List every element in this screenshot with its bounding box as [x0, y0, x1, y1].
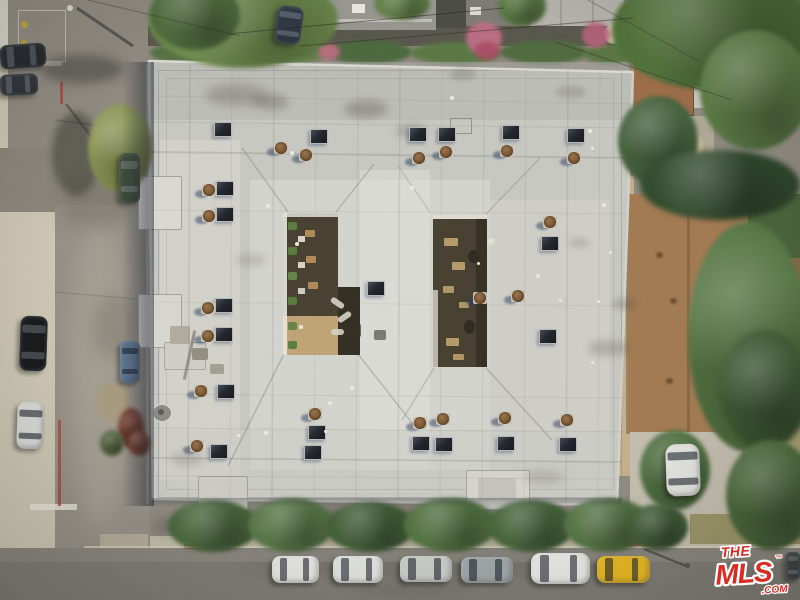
- garden-hedge-right: [748, 194, 800, 258]
- aerial-photo-scene: THE MLS ™ .COM: [0, 0, 800, 600]
- stair-bumpout-1: [138, 176, 182, 230]
- vehicle-green-left-street: [119, 153, 140, 203]
- tree-top-big-dark: [150, 0, 240, 50]
- roof-pipe-vent-17: [328, 401, 332, 405]
- red-curb-left: [58, 420, 61, 506]
- roof-pipe-vent-20: [237, 434, 240, 437]
- vent-shadow-20: [536, 222, 549, 230]
- roof-vent-18: [474, 292, 486, 304]
- white-pipes-2: [486, 238, 495, 245]
- street-worn-patch: [70, 210, 130, 530]
- parapet-line-south: [152, 458, 622, 462]
- main-building-roof: [0, 0, 800, 600]
- seam-h-3: [150, 210, 632, 214]
- dry-grass-right: [742, 428, 800, 516]
- fire-hydrant: [21, 21, 28, 28]
- watermark-tm-text: ™: [775, 555, 782, 562]
- cl-planter-3: [288, 272, 297, 280]
- satellite-dish-center: [158, 409, 164, 415]
- suv-navy-top: [273, 4, 304, 45]
- roof-lines: [0, 0, 800, 600]
- roof-stain-4: [396, 124, 426, 138]
- roof-skylight-9: [215, 298, 233, 313]
- roof-stain-9: [568, 238, 590, 248]
- bougainvillea-3: [474, 42, 500, 60]
- seam-h-1: [150, 96, 634, 104]
- car-windshield: [303, 558, 309, 581]
- roof-vent-base-6: [567, 152, 581, 164]
- street-vertical-upper: [8, 0, 150, 212]
- seam-v-4: [314, 66, 316, 500]
- pole-shadow-bottomright: [644, 549, 686, 566]
- seam-v-5: [356, 67, 358, 500]
- cr-furniture-3: [443, 286, 454, 293]
- dead-bush: [96, 382, 130, 422]
- left-sidewalk: [0, 60, 60, 548]
- hip-seam-1: [242, 148, 288, 212]
- roof-pipe-vent-6: [450, 96, 454, 100]
- dark-equipment-2: [374, 330, 386, 340]
- pole-shadow-2: [66, 104, 100, 148]
- tree-top-left-small: [374, 0, 430, 20]
- mls-watermark: THE MLS ™ .COM: [710, 538, 800, 600]
- roof-skylight-19: [435, 437, 453, 452]
- roof-pipe-vent-16: [591, 147, 594, 150]
- roof-skylight-18: [412, 436, 430, 451]
- vehicles-layer: [0, 0, 800, 600]
- roof-vent-base-13: [436, 413, 450, 425]
- roof-vent-17: [309, 408, 321, 420]
- roof-skylight-2: [310, 129, 328, 144]
- bottom-street-oil: [350, 583, 470, 595]
- roof-pipe-vent-2: [295, 242, 299, 246]
- seam-h-4: [150, 302, 630, 306]
- cr-plant-1: [468, 250, 479, 263]
- roof-pipe-vent-14: [602, 203, 606, 207]
- bottom-tree-3: [326, 502, 414, 552]
- roof-hatch-outline: [450, 118, 472, 134]
- bougainvillea-2: [466, 22, 502, 54]
- cl-bench-3: [331, 329, 344, 335]
- roof-vent-base-16: [190, 440, 204, 452]
- roof-skylight-5: [502, 125, 520, 140]
- bumpout-bottom-left: [198, 476, 248, 510]
- roof-vent-base-11: [194, 385, 208, 397]
- power-wire-2: [300, 18, 634, 46]
- roof-parapet-inset: [158, 70, 622, 498]
- cl-planter-2: [288, 247, 297, 255]
- red-curb-bottom-right: [588, 541, 660, 547]
- roof-skylight-20: [497, 436, 515, 451]
- roof-vent-base-19: [511, 290, 525, 302]
- house-pad-top: [248, 0, 312, 32]
- roof-light-right: [490, 200, 610, 460]
- tree-top-mid: [498, 0, 546, 26]
- roof-edge-top: [149, 61, 633, 72]
- seam-v-1: [188, 64, 190, 500]
- roof-pipe-vent-1: [266, 204, 270, 208]
- seam-v-7: [440, 68, 442, 502]
- roof-vent-base-12: [413, 417, 427, 429]
- truck-dark-topleft-2: [0, 73, 39, 96]
- seam-h-2: [150, 122, 634, 128]
- white-pipes-1: [472, 290, 484, 298]
- roof-pipe-vent-21: [324, 430, 327, 433]
- house-railing: [306, 19, 432, 22]
- roof-pipe-vent-5: [410, 186, 414, 190]
- wire-shadow-2: [55, 292, 148, 300]
- car-windshield: [277, 29, 299, 37]
- car-silver-bottom: [400, 556, 452, 582]
- bottom-tree-4: [404, 498, 496, 552]
- bottom-street-tire: [240, 560, 620, 576]
- roof-stain-7: [588, 340, 630, 356]
- white-structure-right: [694, 66, 722, 108]
- street-bottom: [0, 548, 800, 600]
- pole-shadow-1: [77, 8, 133, 46]
- roof-pipe-vent-13: [609, 251, 612, 254]
- rooftop-unit-2: [352, 4, 365, 13]
- roof-pipe-vent-8: [489, 240, 492, 243]
- roof-pipe-vent-12: [591, 361, 594, 364]
- roof-vent-10: [202, 330, 214, 342]
- roof-col-light-mid: [360, 170, 430, 470]
- vent-shadow-14: [491, 418, 504, 426]
- truck-dark-topleft-1: [0, 42, 47, 69]
- curb-line-bottom: [84, 546, 800, 548]
- bumpout-bottom-mid: [466, 470, 530, 510]
- car-windshield: [21, 352, 44, 359]
- crosswalk-line: [8, 62, 62, 66]
- roof-stain-6: [556, 86, 586, 98]
- cl-planter-6: [288, 341, 297, 349]
- vent-shadow-7: [195, 190, 208, 198]
- utility-pole-top-left: [67, 5, 73, 11]
- vent-shadow-19: [504, 296, 517, 304]
- power-wire-1: [228, 8, 504, 34]
- roof-vent-base-18: [473, 292, 487, 304]
- roof-vent-base-8: [202, 210, 216, 222]
- roof-vent-base-7: [202, 184, 216, 196]
- cl-floor-tan: [283, 316, 338, 355]
- building-west-wall-shadow: [122, 62, 154, 506]
- curb-line-left-street: [146, 64, 149, 504]
- roof-vent-base-14: [498, 412, 512, 424]
- equipment-2: [192, 348, 208, 360]
- cr-furniture-6: [453, 354, 464, 360]
- power-wire-4: [588, 0, 700, 62]
- hip-seam-4: [486, 158, 540, 214]
- roof-edge-south: [153, 499, 617, 505]
- equipment-shed: [164, 342, 206, 370]
- vent-shadow-10: [194, 336, 207, 344]
- vent-shadow-12: [406, 423, 419, 431]
- roof-pipe-vent-11: [597, 300, 600, 303]
- car-windshield: [30, 45, 37, 65]
- car-windshield: [366, 558, 372, 581]
- driveway-right: [630, 432, 744, 516]
- pergola-roof: [630, 58, 694, 116]
- parking-bay-marking: [18, 10, 66, 62]
- brown-roof-dot-1: [656, 252, 663, 258]
- rooftop-unit-1: [312, 5, 325, 14]
- roof-vent-16: [191, 440, 203, 452]
- roof-vent-1: [300, 149, 312, 161]
- roof-stain-2: [253, 94, 289, 110]
- cl-wall-top: [283, 213, 338, 217]
- roof-vent-base-17: [308, 408, 322, 420]
- tree-top-big: [148, 0, 338, 68]
- red-curb-left-top: [60, 82, 63, 104]
- roof-stain-5: [450, 68, 476, 80]
- umbrella-small-top: [604, 24, 632, 44]
- vent-shadow-6: [560, 158, 573, 166]
- roof-vent-12: [414, 417, 426, 429]
- car-windshield: [341, 558, 349, 581]
- hip-seam-6: [358, 354, 416, 428]
- car-windshield: [408, 558, 416, 580]
- vent-shadow-1: [292, 155, 305, 163]
- house-black-roof: [266, 0, 304, 24]
- car-windshield: [605, 558, 613, 581]
- cl-bench-2: [337, 310, 353, 324]
- roof-vent-base-1: [299, 149, 313, 161]
- umbrella-center-pole: [684, 146, 688, 150]
- overlay-shadows-layer: [0, 0, 800, 600]
- hedge-2: [238, 44, 328, 64]
- stop-line: [30, 504, 77, 510]
- car-black-left-street: [19, 316, 48, 372]
- cl-wall-left: [283, 213, 287, 355]
- car-windshield: [540, 555, 549, 582]
- cr-furniture-1: [444, 238, 458, 246]
- car-windshield: [22, 324, 45, 333]
- vent-shadow-18: [466, 298, 479, 306]
- roof-skylight-8: [216, 207, 234, 222]
- roof-vent-base-20: [543, 216, 557, 228]
- house-modern-seam-1: [560, 0, 562, 26]
- bumpout-bottom-mid-inner: [478, 478, 516, 500]
- roof-stain-8: [612, 298, 638, 310]
- roof-edge-west: [149, 61, 153, 499]
- roof-vent-base-15: [560, 414, 574, 426]
- roof-vent-base-5: [500, 145, 514, 157]
- house-modern-roof: [530, 0, 624, 26]
- bottom-tree-7: [628, 504, 688, 550]
- vent-shadow-17: [301, 414, 314, 422]
- car-white-bottom-1: [272, 556, 319, 583]
- truck-shadow-streak: [40, 55, 124, 83]
- roof-stain-10: [236, 254, 266, 266]
- roof-stain-1: [205, 84, 269, 106]
- roof-vent-6: [568, 152, 580, 164]
- street-west-stub: [0, 148, 58, 212]
- seam-v-2: [230, 64, 232, 500]
- ground-layer: [0, 0, 800, 600]
- house-mid-gap: [436, 0, 466, 28]
- rooftop-unit-3: [470, 7, 481, 15]
- tree-bottomright-corner: [726, 440, 800, 550]
- stair-bumpout-2: [138, 294, 182, 348]
- tree-topright-1: [612, 0, 800, 90]
- car-windshield: [121, 186, 138, 192]
- roof-vent-9: [202, 302, 214, 314]
- equipment-pipe: [183, 330, 196, 380]
- cl-table-2: [306, 256, 316, 263]
- cr-furniture-4: [459, 302, 469, 308]
- car-white-bottom-2: [333, 556, 383, 583]
- car-gray-bottom: [461, 557, 513, 583]
- roof-vent-base-9: [201, 302, 215, 314]
- hedge-4: [410, 42, 502, 64]
- car-blue-left-street: [120, 341, 140, 383]
- car-windshield: [19, 409, 42, 417]
- hip-seam-3: [398, 166, 430, 212]
- roof-vent-13: [437, 413, 449, 425]
- cr-wall-top: [433, 215, 487, 219]
- car-windshield: [121, 161, 138, 169]
- roof-pipe-vent-4: [350, 386, 354, 390]
- roof-skylight-15: [210, 444, 228, 459]
- roof-vent-2: [275, 142, 287, 154]
- car-white-left-street: [16, 402, 45, 450]
- car-windshield: [122, 369, 138, 374]
- roof-pipe-vent-15: [588, 129, 592, 133]
- red-shrub-2: [128, 430, 150, 456]
- roof-vent-base-3: [412, 152, 426, 164]
- dark-equipment-1: [346, 324, 361, 337]
- left-sidewalk-top-strip: [0, 0, 10, 64]
- brown-roof-dot-4: [666, 378, 673, 384]
- roof-pipe-vent-10: [559, 299, 562, 302]
- hip-seam-7: [486, 368, 552, 440]
- vent-shadow-15: [553, 420, 566, 428]
- roof-vent-base-2: [274, 142, 288, 154]
- car-windshield: [25, 75, 30, 92]
- bottom-tree-6: [564, 498, 652, 552]
- garage-topright: [750, 0, 800, 52]
- roof-skylight-12: [367, 281, 385, 296]
- cr-furniture-5: [446, 338, 459, 346]
- car-windshield: [19, 433, 42, 439]
- overlay-lines: [0, 0, 800, 600]
- bottom-tree-5: [488, 500, 574, 552]
- tree-right-dark: [720, 330, 800, 450]
- seam-v-10: [566, 70, 568, 503]
- vegetation-layer: [0, 0, 800, 600]
- house-gray-roof: [304, 0, 436, 30]
- seam-h-5: [152, 394, 626, 398]
- vent-shadow-2: [267, 148, 280, 156]
- car-windshield: [668, 478, 698, 485]
- equipment-1: [170, 326, 190, 344]
- power-wire-5: [88, 0, 240, 36]
- bottom-tree-1: [168, 500, 258, 552]
- car-windshield: [7, 47, 15, 67]
- cl-box-2: [298, 262, 305, 268]
- satellite-dish: [152, 404, 172, 422]
- street-stain: [92, 295, 136, 359]
- bottom-sidewalk-strip: [150, 536, 620, 550]
- vent-shadow-9: [194, 308, 207, 316]
- street-vertical-lower: [55, 205, 150, 550]
- tree-right-mid: [688, 222, 800, 452]
- roof-skylight-1: [214, 122, 232, 137]
- car-windshield: [495, 559, 501, 581]
- utility-pole-bottom-right: [685, 563, 690, 568]
- vent-shadow-13: [429, 419, 442, 427]
- roof-pipe-vent-7: [477, 262, 480, 265]
- courtyard-left: [0, 0, 800, 600]
- roof-vent-base-10: [201, 330, 215, 342]
- photo-vignette: [0, 0, 800, 600]
- cr-plant-2: [464, 320, 475, 334]
- vent-shadow-3: [405, 158, 418, 166]
- cr-furniture-2: [452, 262, 465, 270]
- roof-top-band: [150, 62, 634, 120]
- house-modern-seam-2: [592, 0, 594, 26]
- vent-shadow-4: [432, 152, 445, 160]
- car-white-driveway: [665, 443, 701, 496]
- roof-stain-3: [344, 100, 388, 118]
- roof-skylight-6: [567, 128, 585, 143]
- hedge-5: [500, 40, 588, 64]
- bougainvillea-4: [582, 22, 610, 48]
- tree-topright-dark: [640, 150, 800, 220]
- roof-parapet-inset-2: [166, 78, 614, 490]
- hedge-3: [326, 40, 412, 64]
- roof-bottom-band: [160, 430, 610, 500]
- car-windshield: [570, 555, 577, 582]
- roof-stain-11: [170, 452, 204, 466]
- seam-v-8: [482, 69, 484, 502]
- cl-box-1: [298, 236, 305, 242]
- seam-v-9: [524, 69, 526, 502]
- roof-light-band-left: [160, 140, 240, 480]
- roof-vent-base-4: [439, 146, 453, 158]
- intersection-stain: [58, 175, 132, 229]
- roof-skylight-10: [215, 327, 233, 342]
- alley-strip: [148, 26, 636, 46]
- roof-skylight-4: [438, 127, 456, 142]
- car-windshield: [280, 558, 287, 581]
- car-windshield: [469, 559, 477, 581]
- ground-lines: [0, 0, 800, 600]
- car-windshield: [6, 76, 13, 93]
- bottom-tree-shadow-strip: [152, 506, 662, 546]
- roof-vent-15: [561, 414, 573, 426]
- roof-light-center: [250, 180, 490, 470]
- surroundings-layer: [0, 0, 800, 600]
- roof-skylight-11: [217, 384, 235, 399]
- patio-umbrella: [666, 128, 706, 168]
- cl-table-1: [305, 230, 315, 237]
- car-windshield: [279, 11, 302, 20]
- red-curb-bottom-left: [184, 544, 212, 549]
- cl-planter-5: [288, 322, 297, 330]
- garden-rows-right: [750, 258, 800, 352]
- bottom-tree-2: [248, 498, 334, 552]
- seam-v-11: [598, 70, 600, 504]
- hedge-6: [584, 44, 636, 64]
- vent-shadow-8: [195, 216, 208, 224]
- cl-table-3: [308, 282, 318, 289]
- roof-skylight-3: [409, 127, 427, 142]
- seam-h-7: [152, 476, 620, 479]
- tree-topright-2: [700, 30, 800, 150]
- hydrant-marking: [21, 39, 27, 45]
- brown-roof-house: [628, 194, 750, 434]
